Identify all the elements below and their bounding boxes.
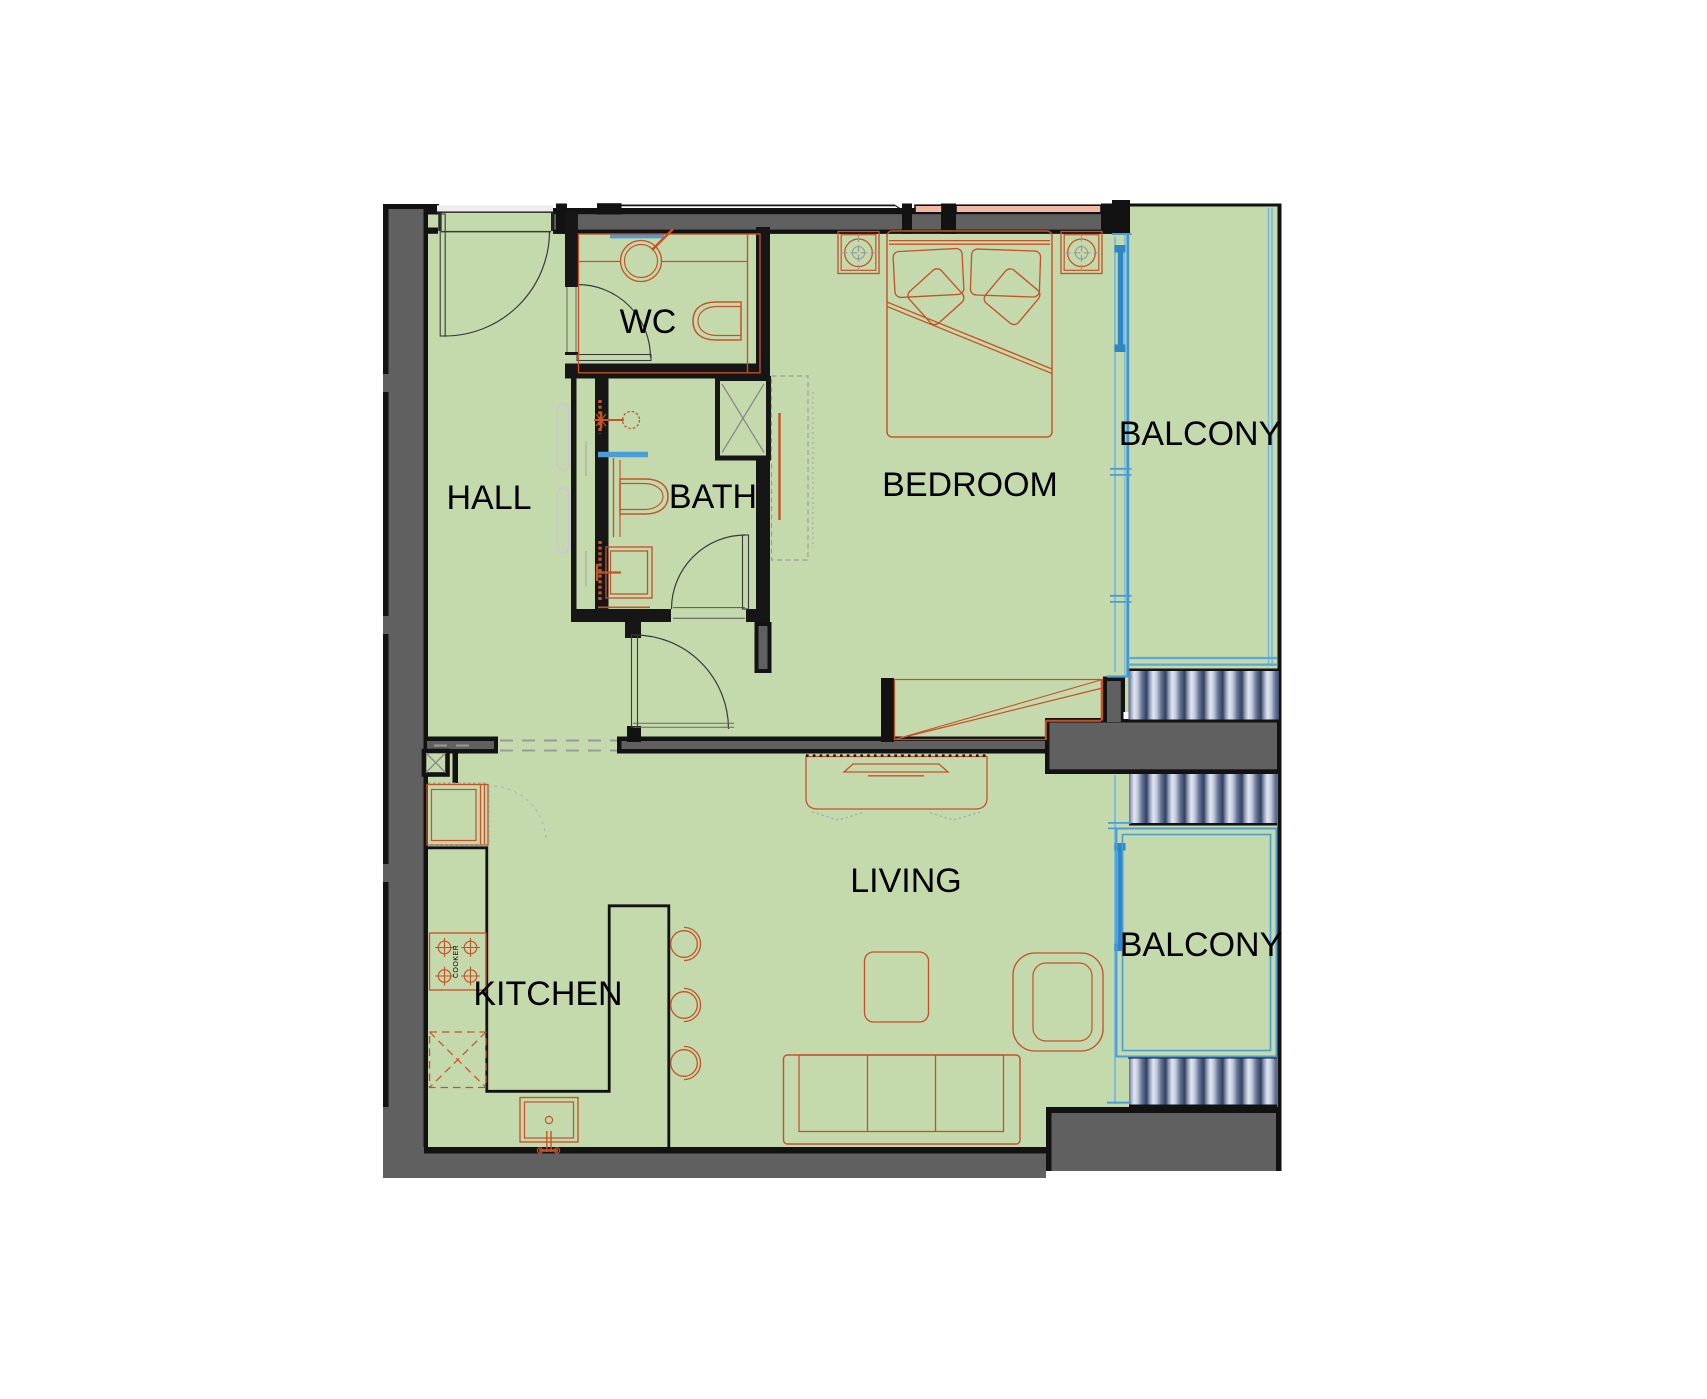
svg-text:HALL: HALL <box>446 479 531 517</box>
svg-text:LIVING: LIVING <box>850 862 961 900</box>
svg-text:BALCONY: BALCONY <box>1120 926 1283 964</box>
svg-text:WC: WC <box>620 303 677 341</box>
svg-text:BALCONY: BALCONY <box>1119 415 1282 453</box>
svg-text:KITCHEN: KITCHEN <box>473 975 622 1013</box>
svg-text:BEDROOM: BEDROOM <box>882 466 1058 504</box>
svg-text:BATH: BATH <box>669 478 757 516</box>
svg-text:COOKER: COOKER <box>453 945 460 978</box>
